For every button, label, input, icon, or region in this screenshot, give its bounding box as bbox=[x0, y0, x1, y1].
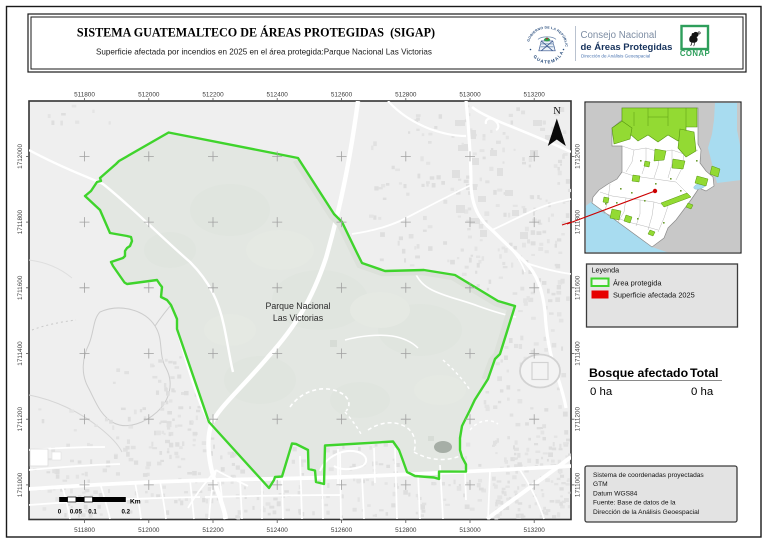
svg-text:513200: 513200 bbox=[524, 527, 546, 534]
svg-text:512000: 512000 bbox=[138, 527, 160, 534]
svg-text:512400: 512400 bbox=[267, 92, 289, 99]
svg-text:1711400: 1711400 bbox=[575, 341, 582, 366]
svg-text:1711200: 1711200 bbox=[17, 407, 24, 432]
svg-text:512000: 512000 bbox=[138, 92, 160, 99]
svg-text:Datum WGS84: Datum WGS84 bbox=[593, 490, 638, 497]
svg-text:513000: 513000 bbox=[459, 92, 481, 99]
svg-text:GTM: GTM bbox=[593, 481, 608, 488]
svg-text:1712000: 1712000 bbox=[575, 144, 582, 169]
svg-text:Fuente: Base de datos de la: Fuente: Base de datos de la bbox=[593, 500, 676, 507]
svg-text:0.05: 0.05 bbox=[70, 509, 83, 516]
svg-text:1711600: 1711600 bbox=[575, 275, 582, 300]
svg-text:Superficie afectada 2025: Superficie afectada 2025 bbox=[613, 291, 695, 300]
svg-text:0 ha: 0 ha bbox=[691, 386, 714, 398]
svg-text:0.1: 0.1 bbox=[88, 509, 97, 516]
svg-text:Total: Total bbox=[690, 366, 718, 380]
svg-text:Dirección de la Análisis Geoes: Dirección de la Análisis Geoespacial bbox=[593, 509, 700, 516]
svg-text:de Áreas Protegidas: de Áreas Protegidas bbox=[581, 42, 673, 53]
svg-text:Leyenda: Leyenda bbox=[592, 266, 620, 275]
svg-text:512200: 512200 bbox=[202, 527, 224, 534]
svg-text:Las Victorias: Las Victorias bbox=[273, 313, 324, 323]
svg-text:512200: 512200 bbox=[202, 92, 224, 99]
svg-text:Km: Km bbox=[130, 499, 141, 506]
svg-text:1711000: 1711000 bbox=[17, 472, 24, 497]
svg-text:N: N bbox=[553, 106, 561, 117]
svg-text:Área protegida: Área protegida bbox=[613, 279, 662, 288]
svg-text:512600: 512600 bbox=[331, 92, 353, 99]
svg-text:1711200: 1711200 bbox=[575, 407, 582, 432]
svg-text:1711800: 1711800 bbox=[17, 209, 24, 234]
svg-text:1711400: 1711400 bbox=[17, 341, 24, 366]
svg-text:511800: 511800 bbox=[74, 527, 95, 534]
svg-text:512800: 512800 bbox=[395, 92, 417, 99]
svg-text:0 ha: 0 ha bbox=[590, 386, 613, 398]
svg-text:Bosque afectado: Bosque afectado bbox=[589, 366, 689, 380]
svg-text:512800: 512800 bbox=[395, 527, 417, 534]
svg-text:0: 0 bbox=[58, 509, 62, 516]
svg-text:512400: 512400 bbox=[267, 527, 289, 534]
svg-text:Dirección de Análisis Geoespac: Dirección de Análisis Geoespacial bbox=[581, 54, 650, 59]
svg-text:SISTEMA GUATEMALTECO DE ÁREAS: SISTEMA GUATEMALTECO DE ÁREAS PROTEGIDAS… bbox=[77, 26, 435, 40]
svg-text:0.2: 0.2 bbox=[121, 509, 130, 516]
svg-text:CONAP: CONAP bbox=[680, 49, 710, 58]
svg-text:513200: 513200 bbox=[524, 92, 546, 99]
svg-text:512600: 512600 bbox=[331, 527, 353, 534]
svg-text:Parque Nacional: Parque Nacional bbox=[265, 301, 330, 311]
svg-text:1711800: 1711800 bbox=[575, 209, 582, 234]
svg-text:511800: 511800 bbox=[74, 92, 95, 99]
svg-text:Sistema de coordenadas proyect: Sistema de coordenadas proyectadas bbox=[593, 472, 704, 479]
svg-text:Consejo Nacional: Consejo Nacional bbox=[581, 30, 657, 41]
svg-text:1711000: 1711000 bbox=[575, 472, 582, 497]
svg-text:513000: 513000 bbox=[459, 527, 481, 534]
svg-text:Superficie afectada por incend: Superficie afectada por incendios en 202… bbox=[96, 48, 432, 57]
svg-text:1712000: 1712000 bbox=[17, 144, 24, 169]
svg-text:1711600: 1711600 bbox=[17, 275, 24, 300]
